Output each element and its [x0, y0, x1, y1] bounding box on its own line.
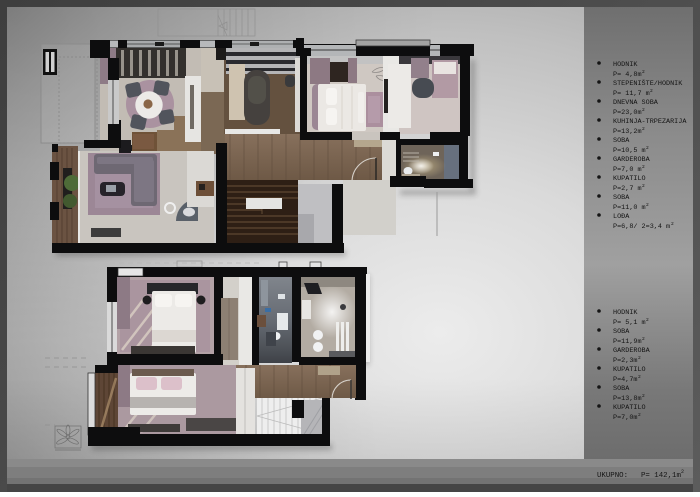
svg-text:P=23,0m: P=23,0m [613, 109, 642, 117]
svg-text:P=4,7m: P=4,7m [613, 376, 637, 384]
svg-text:2: 2 [642, 183, 645, 189]
svg-text:SOBA: SOBA [613, 385, 630, 393]
svg-text:2: 2 [638, 412, 641, 418]
svg-text:KUPATILO: KUPATILO [613, 404, 646, 412]
svg-text:LOĐA: LOĐA [613, 213, 630, 221]
svg-text:P=2,7 m: P=2,7 m [613, 185, 642, 193]
svg-text:2: 2 [642, 69, 645, 75]
svg-text:P=2,3m: P=2,3m [613, 357, 637, 365]
svg-text:KUPATILO: KUPATILO [613, 366, 646, 374]
svg-text:STEPENIŠTE/HODNIK: STEPENIŠTE/HODNIK [613, 78, 683, 88]
svg-text:2: 2 [638, 374, 641, 380]
svg-text:P= 5,1 m: P= 5,1 m [613, 319, 646, 327]
svg-text:GARDEROBA: GARDEROBA [613, 156, 651, 164]
svg-text:P=7,0 m: P=7,0 m [613, 166, 642, 174]
svg-text:HODNIK: HODNIK [613, 61, 638, 69]
svg-text:HODNIK: HODNIK [613, 309, 638, 317]
svg-text:P=13,2m: P=13,2m [613, 128, 642, 136]
svg-text:2: 2 [650, 88, 653, 94]
svg-text:2: 2 [671, 221, 674, 227]
svg-text:2: 2 [646, 145, 649, 151]
svg-text:2: 2 [642, 107, 645, 113]
svg-text:SOBA: SOBA [613, 194, 630, 202]
svg-text:2: 2 [646, 202, 649, 208]
svg-text:2: 2 [642, 393, 645, 399]
svg-text:P=10,5 m: P=10,5 m [613, 147, 646, 155]
svg-text:GARDEROBA: GARDEROBA [613, 347, 651, 355]
svg-text:P= 4,8m: P= 4,8m [613, 71, 642, 79]
svg-text:P=6,8/ 2=3,4 m: P=6,8/ 2=3,4 m [613, 223, 670, 231]
svg-text:P= 142,1m: P= 142,1m [641, 472, 681, 480]
svg-text:SOBA: SOBA [613, 328, 630, 336]
svg-text:P= 11,7 m: P= 11,7 m [613, 90, 650, 98]
svg-text:P=11,0 m: P=11,0 m [613, 204, 646, 212]
svg-text:2: 2 [642, 164, 645, 170]
svg-text:2: 2 [642, 336, 645, 342]
svg-text:KUPATILO: KUPATILO [613, 175, 646, 183]
svg-text:SOBA: SOBA [613, 137, 630, 145]
svg-text:2: 2 [681, 469, 684, 475]
svg-text:P=13,8m: P=13,8m [613, 395, 642, 403]
svg-text:P=11,9m: P=11,9m [613, 338, 642, 346]
svg-text:KUHINJA-TRPEZARIJA: KUHINJA-TRPEZARIJA [613, 118, 687, 126]
svg-text:P=7,0m: P=7,0m [613, 414, 637, 422]
svg-text:2: 2 [638, 355, 641, 361]
svg-text:UKUPNO:: UKUPNO: [597, 472, 628, 480]
svg-text:2: 2 [642, 126, 645, 132]
svg-text:DNEVNA SOBA: DNEVNA SOBA [613, 99, 659, 107]
svg-text:2: 2 [646, 317, 649, 323]
